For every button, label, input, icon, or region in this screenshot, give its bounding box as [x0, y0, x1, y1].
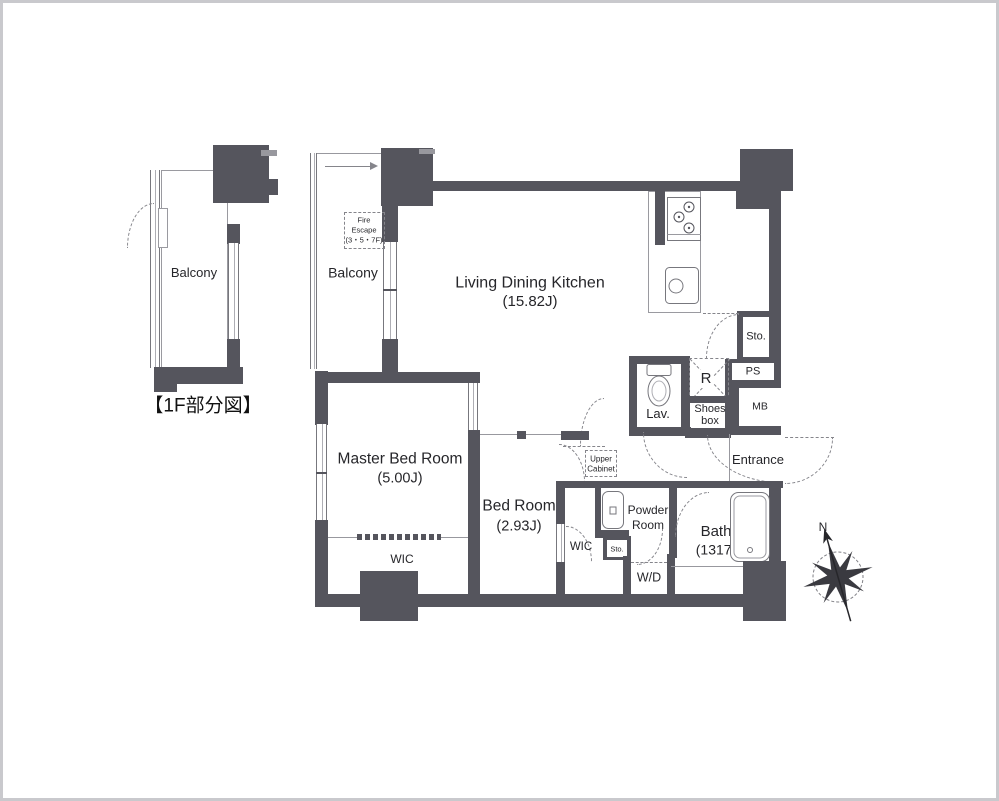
balcony-top-line: [311, 153, 383, 154]
room-label-detail-balcony: Balcony: [171, 265, 217, 281]
toilet-icon: [644, 364, 674, 408]
wall: [669, 481, 677, 558]
compass-north-label: N: [819, 520, 828, 534]
wall: [269, 179, 278, 195]
wall: [556, 486, 565, 525]
door-swing-arc: [643, 432, 687, 478]
room-label-upper-cabinet: Upper Cabinet: [587, 454, 615, 473]
room-label-shoes-box: Shoes box: [694, 403, 725, 427]
room-label-wic-second: WIC: [570, 541, 592, 555]
room-size-master-bedroom: (5.00J): [377, 470, 422, 487]
door-swing-arc: [706, 314, 739, 358]
room-label-refrigerator: R: [699, 370, 714, 388]
door-swing-arc: [127, 203, 154, 248]
door-swing-arc: [675, 492, 709, 537]
wall: [743, 561, 786, 621]
wall: [736, 191, 773, 209]
closet-door-track: [357, 534, 441, 540]
door-jamb: [468, 383, 478, 430]
window-tick: [383, 289, 397, 291]
door-jamb: [556, 524, 565, 563]
window: [228, 243, 239, 340]
room-size-ldk: (15.82J): [502, 293, 557, 311]
room-label-wic-master: WIC: [390, 552, 413, 566]
room-label-storage-top: Sto.: [746, 330, 766, 343]
wall: [623, 556, 631, 596]
wall: [382, 339, 398, 373]
compass-rose: N: [795, 515, 881, 617]
room-label-lavatory: Lav.: [646, 406, 670, 422]
stove-icon: [667, 197, 701, 241]
escape-arrow-line: [325, 166, 371, 167]
wall: [556, 562, 565, 595]
escape-arrow-head: [370, 162, 378, 170]
door-swing-arc: [785, 438, 833, 484]
wall: [556, 481, 677, 488]
wall: [740, 149, 793, 191]
wall: [629, 356, 637, 436]
kitchen-sink-icon: [665, 267, 699, 304]
door-swing-arc: [637, 529, 663, 565]
room-size-bedroom: (2.93J): [496, 518, 541, 535]
door-pivot: [517, 431, 526, 439]
room-label-bedroom: Bed Room: [482, 498, 555, 517]
wall: [315, 594, 746, 607]
room-label-washer-dryer: W/D: [637, 571, 661, 586]
fire-escape-label: Fire Escape (3・5・7F): [345, 215, 382, 244]
wall: [468, 430, 480, 596]
room-boundary-line: [671, 566, 743, 567]
detail-plan-caption: 【1F部分図】: [144, 396, 261, 419]
wall: [655, 191, 665, 245]
wall: [315, 371, 328, 425]
wall: [381, 148, 433, 206]
detail-rail-box: [158, 208, 168, 248]
wall: [315, 372, 480, 383]
window: [150, 170, 160, 368]
wall-tab: [261, 150, 277, 156]
wall: [667, 554, 675, 595]
window: [310, 153, 317, 369]
room-label-ldk: Living Dining Kitchen: [455, 273, 604, 292]
wall: [561, 431, 589, 440]
window-tick: [316, 472, 327, 474]
door-line: [631, 562, 667, 563]
room-label-storage-small: Sto.: [610, 545, 623, 554]
wall: [227, 224, 240, 244]
floor-plan: Balcony 【1F部分図】 Fire Escape (3・5・7F) Bal…: [0, 0, 999, 801]
washbasin-icon: [602, 491, 624, 529]
room-label-master-bedroom: Master Bed Room: [338, 451, 463, 470]
room-label-balcony: Balcony: [328, 265, 378, 282]
wall: [154, 381, 177, 392]
wall-tab: [419, 149, 435, 154]
wall: [769, 191, 781, 313]
room-label-meter-box: MB: [752, 401, 768, 414]
wall: [433, 181, 740, 191]
wall: [769, 485, 781, 563]
door-swing-arc: [559, 444, 585, 482]
wall: [671, 481, 783, 488]
wall: [595, 488, 601, 536]
wall: [227, 339, 240, 369]
bathtub-icon: [730, 492, 770, 562]
door-swing-arc: [707, 435, 781, 483]
room-label-pipe-space: PS: [746, 365, 761, 378]
wall: [315, 520, 328, 605]
